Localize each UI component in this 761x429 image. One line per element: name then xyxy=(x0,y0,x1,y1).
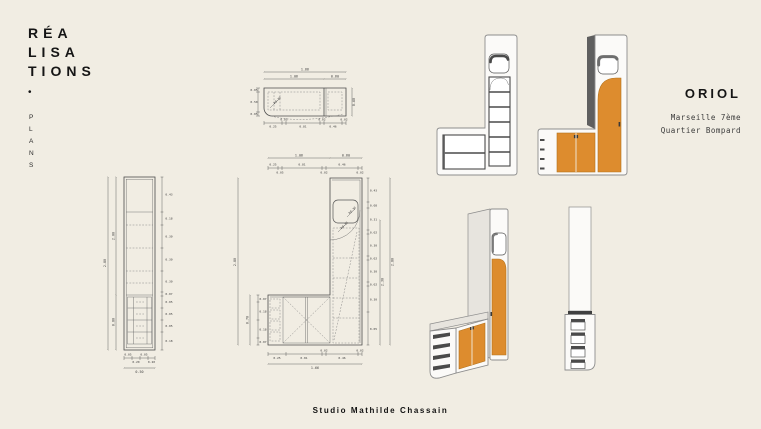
project-block: ORIOL Marseille 7ème Quartier Bompard xyxy=(661,86,741,137)
svg-text:0.02: 0.02 xyxy=(370,257,377,261)
svg-text:0.18: 0.18 xyxy=(165,217,172,221)
svg-text:0.02: 0.02 xyxy=(320,171,327,175)
svg-text:2.80: 2.80 xyxy=(233,258,237,266)
svg-text:0.07: 0.07 xyxy=(259,340,266,344)
svg-text:0.81: 0.81 xyxy=(300,356,307,360)
low-unit-orange-doors xyxy=(459,323,485,369)
svg-text:1.06: 1.06 xyxy=(295,153,303,157)
svg-text:1.06: 1.06 xyxy=(290,74,298,78)
category-letter: N xyxy=(29,150,96,157)
svg-text:2.80: 2.80 xyxy=(103,259,107,267)
svg-text:0.18: 0.18 xyxy=(259,310,266,314)
svg-text:2.30: 2.30 xyxy=(380,278,384,286)
svg-text:0.08: 0.08 xyxy=(370,204,377,208)
svg-text:0.46: 0.46 xyxy=(338,162,345,166)
title-line-3: TIONS xyxy=(28,62,96,81)
svg-text:0.05: 0.05 xyxy=(370,327,377,331)
svg-text:0.50: 0.50 xyxy=(250,100,257,104)
svg-text:0.02: 0.02 xyxy=(370,231,377,235)
side-panel-shadow xyxy=(587,35,595,129)
elevation-left-body xyxy=(124,177,155,350)
svg-text:0.18: 0.18 xyxy=(165,339,172,343)
mirror-niche xyxy=(492,233,506,255)
svg-text:0.81: 0.81 xyxy=(298,162,305,166)
svg-text:0.05: 0.05 xyxy=(276,171,283,175)
svg-text:0.05: 0.05 xyxy=(165,300,172,304)
column-panel xyxy=(569,207,591,311)
svg-text:0.20: 0.20 xyxy=(132,360,139,364)
svg-text:2.00: 2.00 xyxy=(111,232,115,240)
studio-footer: Studio Mathilde Chassain xyxy=(0,406,761,415)
svg-text:0.30: 0.30 xyxy=(370,270,377,274)
elevation-l-dimensions: 1.06 0.60 0.25 0.05 0.81 0.02 0.46 0.02 … xyxy=(233,153,394,370)
svg-text:0.60: 0.60 xyxy=(331,74,339,78)
render-perspective xyxy=(426,202,521,382)
tall-orange-door xyxy=(491,259,506,355)
category-letter: L xyxy=(29,126,96,133)
svg-text:0.05: 0.05 xyxy=(250,88,257,92)
svg-text:0.43: 0.43 xyxy=(370,189,377,193)
svg-text:0.05: 0.05 xyxy=(165,324,172,328)
tall-orange-door xyxy=(598,78,621,172)
svg-text:0.05: 0.05 xyxy=(280,117,287,121)
svg-text:0.02: 0.02 xyxy=(370,283,377,287)
project-location-line1: Marseille 7ème xyxy=(661,111,741,124)
base-drawers xyxy=(571,319,585,369)
shelf-column xyxy=(489,77,510,166)
svg-text:0.31: 0.31 xyxy=(370,218,377,222)
svg-text:0.46: 0.46 xyxy=(338,356,345,360)
svg-text:0.02: 0.02 xyxy=(318,117,325,121)
category-vertical-plans: P L A N S xyxy=(29,114,96,169)
title-line-2: LISA xyxy=(28,43,96,62)
radius-mirror-label: R0.30 xyxy=(348,206,357,215)
svg-text:0.05: 0.05 xyxy=(250,112,257,116)
svg-text:1.66: 1.66 xyxy=(301,67,309,71)
svg-text:0.30: 0.30 xyxy=(370,298,377,302)
svg-text:0.46: 0.46 xyxy=(329,125,336,129)
svg-text:0.43: 0.43 xyxy=(165,193,172,197)
render-column-front xyxy=(558,200,600,375)
category-letter: P xyxy=(29,114,96,121)
svg-text:0.02: 0.02 xyxy=(356,171,363,175)
column-band-shadow xyxy=(568,311,592,315)
mirror-niche xyxy=(598,56,618,74)
svg-text:1.66: 1.66 xyxy=(311,366,319,370)
svg-text:0.25: 0.25 xyxy=(269,162,276,166)
render-closed-front xyxy=(530,28,632,178)
svg-text:0.07: 0.07 xyxy=(165,292,172,296)
open-side-shelves xyxy=(430,328,456,378)
title-block: RÉA LISA TIONS • P L A N S xyxy=(28,24,96,169)
plan-top-drawing: R0.30 1.66 1.06 0.60 0.25 0.05 0.81 0.02… xyxy=(248,52,398,144)
arm-orange-doors xyxy=(557,133,595,172)
svg-text:0.30: 0.30 xyxy=(165,235,172,239)
svg-text:0.05: 0.05 xyxy=(124,352,131,356)
svg-text:0.50: 0.50 xyxy=(135,370,143,374)
svg-text:0.81: 0.81 xyxy=(299,125,306,129)
portfolio-slide: RÉA LISA TIONS • P L A N S ORIOL Marseil… xyxy=(0,0,761,429)
arm-shelves xyxy=(443,135,485,169)
svg-text:0.80: 0.80 xyxy=(111,318,115,326)
title-line-1: RÉA xyxy=(28,24,96,43)
elevation-left-dimensions: 2.80 2.00 0.80 0.43 0.18 0.30 0.30 0.30 … xyxy=(103,177,173,374)
svg-text:0.02: 0.02 xyxy=(340,117,347,121)
svg-text:0.18: 0.18 xyxy=(259,328,266,332)
svg-text:0.05: 0.05 xyxy=(165,312,172,316)
mirror-niche xyxy=(489,54,509,73)
category-letter: A xyxy=(29,138,96,145)
project-name: ORIOL xyxy=(661,86,741,101)
svg-text:2.80: 2.80 xyxy=(390,258,394,266)
bullet-icon: • xyxy=(28,87,96,98)
svg-text:0.20: 0.20 xyxy=(148,360,155,364)
elevation-left-drawing: 2.80 2.00 0.80 0.43 0.18 0.30 0.30 0.30 … xyxy=(96,162,196,377)
svg-text:0.02: 0.02 xyxy=(356,348,363,352)
render-open-front xyxy=(432,28,527,178)
svg-text:0.60: 0.60 xyxy=(352,98,356,106)
elevation-l-body: R0.30 R0.30 xyxy=(268,178,362,345)
svg-text:0.60: 0.60 xyxy=(342,153,350,157)
svg-text:0.30: 0.30 xyxy=(165,258,172,262)
svg-text:0.05: 0.05 xyxy=(140,352,147,356)
svg-text:0.07: 0.07 xyxy=(259,297,266,301)
plan-body: R0.30 xyxy=(264,88,346,119)
svg-text:0.25: 0.25 xyxy=(269,125,276,129)
elevation-l-drawing: R0.30 R0.30 1.06 0.60 0.25 0.05 0.81 xyxy=(228,142,403,387)
project-location-line2: Quartier Bompard xyxy=(661,124,741,137)
svg-text:0.30: 0.30 xyxy=(370,244,377,248)
svg-text:0.25: 0.25 xyxy=(273,356,280,360)
radius-door-label: R0.30 xyxy=(340,221,349,230)
svg-text:0.70: 0.70 xyxy=(245,316,249,324)
svg-text:0.02: 0.02 xyxy=(320,348,327,352)
svg-text:0.30: 0.30 xyxy=(165,280,172,284)
category-letter: S xyxy=(29,162,96,169)
